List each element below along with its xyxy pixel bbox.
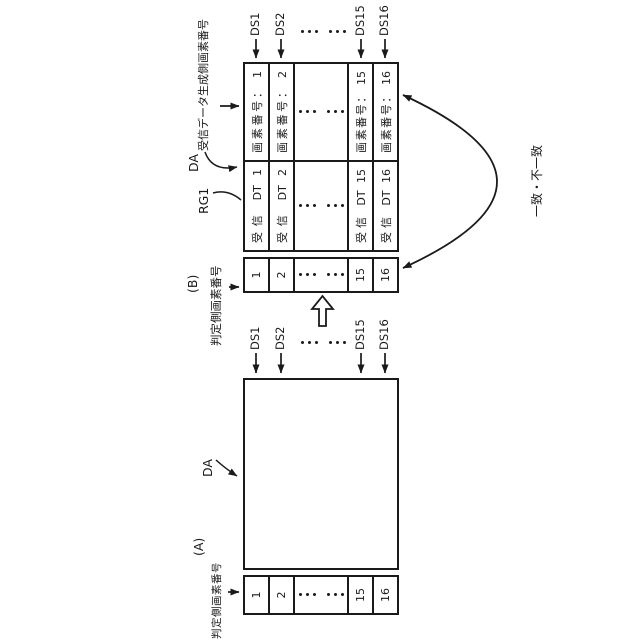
ellipsis-dots <box>299 274 344 277</box>
judge-value: 1 <box>250 272 263 279</box>
register-row: 受信 DT 15 画素番号： 15 <box>347 64 372 250</box>
pixel-number-value: 画素番号： 15 <box>353 64 369 160</box>
recv-dt-cell <box>295 162 347 250</box>
figure-b-da-arrow <box>205 152 237 168</box>
judge-cell: 16 <box>372 577 397 613</box>
recv-dt-value: 受信 DT 2 <box>274 162 290 250</box>
figure-b-rg1-label: RG1 <box>196 188 211 214</box>
judge-cell: 16 <box>372 259 397 291</box>
judge-cell: 15 <box>347 259 372 291</box>
pixel-number-cell: 画素番号： 1 <box>245 64 268 162</box>
ds-signal-label: DS16 <box>378 319 392 350</box>
figure-b-rg1-leader-line <box>213 192 241 200</box>
judge-value: 2 <box>275 272 288 279</box>
judge-value: 1 <box>250 592 263 599</box>
ds-signal-label: DS15 <box>354 5 368 36</box>
ds-signal-label: DS15 <box>354 319 368 350</box>
register-row: 受信 DT 16 画素番号： 16 <box>372 64 397 250</box>
judge-value: 16 <box>379 588 392 602</box>
pixel-number-cell <box>295 64 347 162</box>
judge-cell: 1 <box>245 259 268 291</box>
pixel-number-cell: 画素番号： 15 <box>349 64 372 162</box>
figure-a-da-label: DA <box>200 459 215 477</box>
figure-a-ds-arrows <box>256 353 385 373</box>
judge-cell: 15 <box>347 577 372 613</box>
recv-dt-cell: 受信 DT 16 <box>374 162 397 250</box>
figure-a-label: (A) <box>191 538 206 556</box>
judge-cell-ellipsis <box>293 577 347 613</box>
figure-a-judge-column: 1 2 15 16 <box>243 575 399 615</box>
pixel-number-cell: 画素番号： 16 <box>374 64 397 162</box>
ds-signal-label: DS16 <box>378 5 392 36</box>
recv-dt-value: 受信 DT 15 <box>353 162 369 250</box>
figure-b-label: (B) <box>185 275 200 293</box>
figure-a-data-array-body <box>243 378 399 570</box>
pixel-number-cell: 画素番号： 2 <box>270 64 293 162</box>
figure-a-da-arrow <box>216 460 237 476</box>
ellipsis-dots <box>299 111 344 114</box>
ds-signal-label: DS1 <box>249 13 263 36</box>
judge-cell: 2 <box>268 259 293 291</box>
ellipsis-dots <box>299 205 344 208</box>
judge-value: 2 <box>275 592 288 599</box>
register-row-ellipsis <box>293 64 347 250</box>
ellipsis-dots <box>301 338 346 348</box>
recv-dt-cell: 受信 DT 2 <box>270 162 293 250</box>
judge-value: 15 <box>354 588 367 602</box>
recv-dt-cell: 受信 DT 15 <box>349 162 372 250</box>
patent-diagram-canvas: (A) 判定側画素番号 DA 1 2 15 16 DS1 DS2 DS15 DS… <box>0 0 640 640</box>
ds-signal-label: DS2 <box>274 13 288 36</box>
recv-dt-cell: 受信 DT 1 <box>245 162 268 250</box>
figure-a-judge-header: 判定側画素番号 <box>211 562 224 639</box>
recv-dt-value: 受信 DT 1 <box>249 162 265 250</box>
match-mismatch-label: 一致・不一致 <box>530 145 544 217</box>
ellipsis-dots <box>299 594 344 597</box>
pixel-number-value: 画素番号： 2 <box>274 64 290 160</box>
input-outline-arrow-icon <box>312 296 333 326</box>
judge-value: 15 <box>354 268 367 282</box>
figure-b-register-table: 受信 DT 1 画素番号： 1 受信 DT 2 画素番号： 2 受信 DT 15… <box>243 62 399 252</box>
pixel-number-value: 画素番号： 1 <box>249 64 265 160</box>
match-mismatch-arc-arrow <box>403 95 497 268</box>
ds-signal-label: DS2 <box>274 327 288 350</box>
figure-b-judge-header: 判定側画素番号 <box>210 266 224 347</box>
recv-dt-value: 受信 DT 16 <box>378 162 394 250</box>
judge-cell: 1 <box>245 577 268 613</box>
ds-signal-label: DS1 <box>249 327 263 350</box>
judge-cell-ellipsis <box>293 259 347 291</box>
figure-b-ds-arrows <box>256 39 385 58</box>
judge-cell: 2 <box>268 577 293 613</box>
register-row: 受信 DT 1 画素番号： 1 <box>245 64 268 250</box>
pixel-number-value: 画素番号： 16 <box>378 64 394 160</box>
figure-b-recv-header: 受信データ生成側画素番号 <box>197 19 210 151</box>
ellipsis-dots <box>301 27 346 37</box>
figure-b-da-label: DA <box>186 154 201 172</box>
figure-b-judge-column: 1 2 15 16 <box>243 257 399 293</box>
register-row: 受信 DT 2 画素番号： 2 <box>268 64 293 250</box>
judge-value: 16 <box>379 268 392 282</box>
